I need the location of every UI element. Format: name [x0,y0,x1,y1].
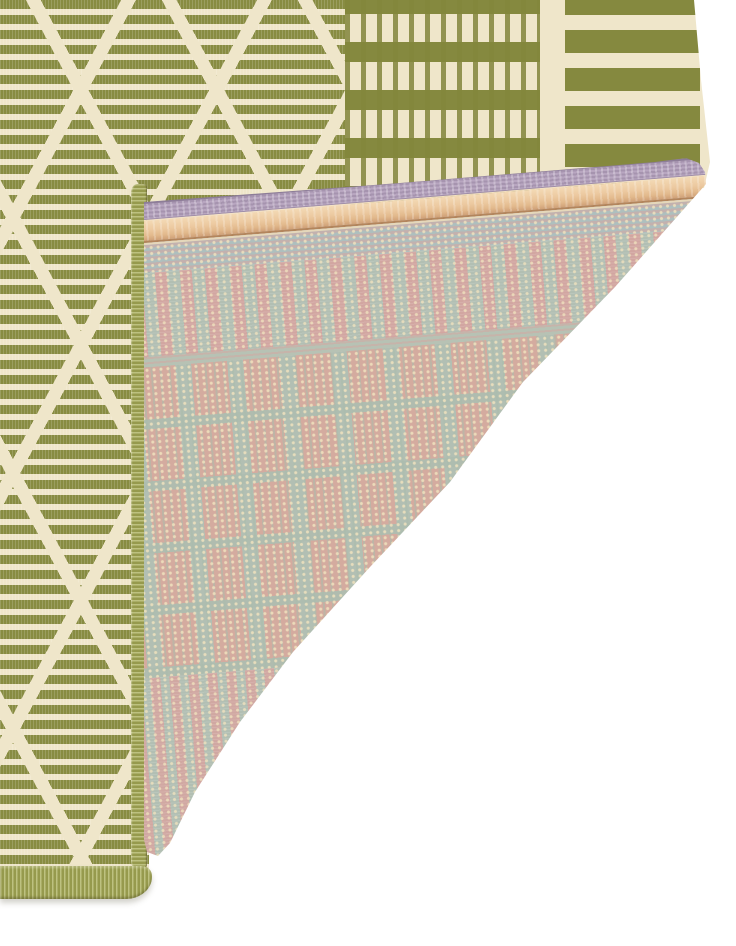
rug-backing [144,141,736,946]
rug-product-photo [0,0,736,946]
rug-bottom-binding [0,866,152,899]
